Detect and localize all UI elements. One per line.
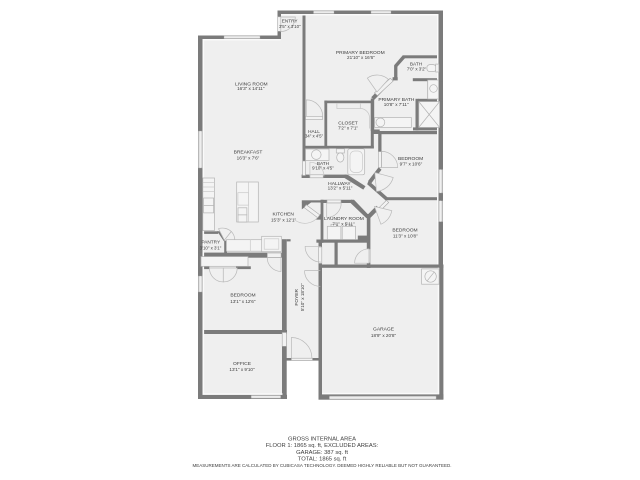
svg-text:15'3" x 12'1": 15'3" x 12'1" <box>271 217 297 222</box>
svg-text:9'7" x 10'6": 9'7" x 10'6" <box>400 162 423 167</box>
svg-text:PANTRY: PANTRY <box>202 240 221 245</box>
svg-text:34" x 4'5": 34" x 4'5" <box>305 134 324 139</box>
svg-text:7'1" x 5'11": 7'1" x 5'11" <box>332 222 355 227</box>
svg-text:13'1" x 12'6": 13'1" x 12'6" <box>230 299 256 304</box>
svg-text:16'3" x 14'11": 16'3" x 14'11" <box>237 86 265 91</box>
svg-text:10'8" x 7'11": 10'8" x 7'11" <box>384 102 409 107</box>
svg-text:18'9" x 20'8": 18'9" x 20'8" <box>371 333 397 338</box>
svg-text:GROSS INTERNAL AREA: GROSS INTERNAL AREA <box>288 437 356 443</box>
svg-text:GARAGE: 387 sq. ft: GARAGE: 387 sq. ft <box>296 450 348 456</box>
svg-text:3'10" x 3'1": 3'10" x 3'1" <box>200 246 222 251</box>
svg-text:9'10" x 4'5": 9'10" x 4'5" <box>312 166 334 171</box>
svg-text:3'5" x 3'10": 3'5" x 3'10" <box>279 24 301 29</box>
svg-text:7'0" x 3'2": 7'0" x 3'2" <box>407 67 427 72</box>
svg-text:7'2" x 7'1": 7'2" x 7'1" <box>338 126 358 131</box>
svg-text:5'10" x 18'10": 5'10" x 18'10" <box>300 283 305 311</box>
svg-text:BEDROOM: BEDROOM <box>230 293 255 299</box>
svg-text:GARAGE: GARAGE <box>373 327 395 333</box>
svg-text:13'2" x 5'11": 13'2" x 5'11" <box>328 186 353 191</box>
svg-text:TOTAL: 1865 sq. ft: TOTAL: 1865 sq. ft <box>298 456 347 462</box>
svg-text:13'1" x 9'10": 13'1" x 9'10" <box>229 367 255 372</box>
svg-text:11'3" x 10'8": 11'3" x 10'8" <box>393 234 418 239</box>
svg-text:BREAKFAST: BREAKFAST <box>234 149 263 155</box>
svg-text:16'3" x 7'6": 16'3" x 7'6" <box>237 156 260 161</box>
svg-text:MEASUREMENTS ARE CALCULATED BY: MEASUREMENTS ARE CALCULATED BY CUBICASA … <box>193 463 452 468</box>
svg-text:FLOOR 1: 1865 sq. ft, EXCLUDED: FLOOR 1: 1865 sq. ft, EXCLUDED AREAS: <box>266 443 379 449</box>
svg-text:21'10" x 16'6": 21'10" x 16'6" <box>347 55 375 60</box>
svg-text:ENTRY: ENTRY <box>282 19 299 24</box>
